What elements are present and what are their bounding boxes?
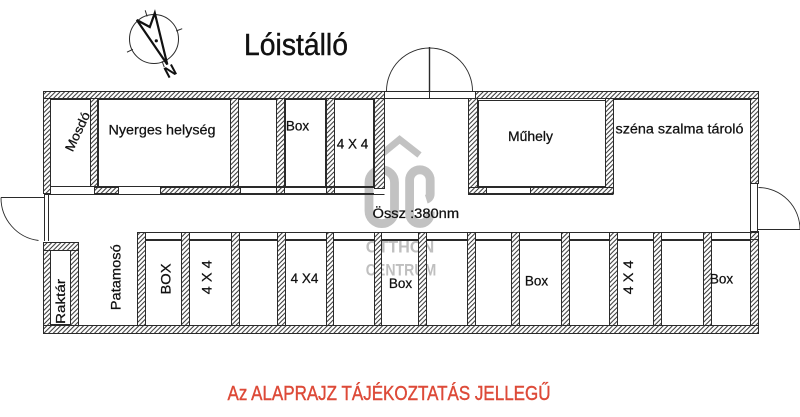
svg-text:Box: Box — [286, 119, 310, 134]
svg-text:széna szalma tároló: széna szalma tároló — [616, 122, 744, 137]
svg-text:Box: Box — [710, 272, 734, 287]
svg-text:Box: Box — [525, 274, 549, 289]
svg-text:Patamosó: Patamosó — [109, 244, 124, 310]
svg-text:BOX: BOX — [159, 264, 174, 295]
svg-text:4 X 4: 4 X 4 — [200, 260, 215, 295]
svg-text:Az ALAPRAJZ TÁJÉKOZTATÁS JELLE: Az ALAPRAJZ TÁJÉKOZTATÁS JELLEGŰ — [228, 382, 551, 405]
svg-text:4 X 4: 4 X 4 — [337, 137, 369, 152]
svg-text:Box: Box — [389, 276, 413, 291]
svg-text:Lóistálló: Lóistálló — [244, 27, 348, 62]
svg-text:Műhely: Műhely — [508, 129, 553, 144]
svg-text:Raktár: Raktár — [54, 279, 68, 324]
svg-text:Össz :380nm: Össz :380nm — [373, 206, 460, 221]
svg-text:4 X 4: 4 X 4 — [621, 260, 636, 295]
svg-text:Nyerges helység: Nyerges helység — [109, 123, 216, 138]
svg-text:4 X4: 4 X4 — [291, 271, 319, 286]
